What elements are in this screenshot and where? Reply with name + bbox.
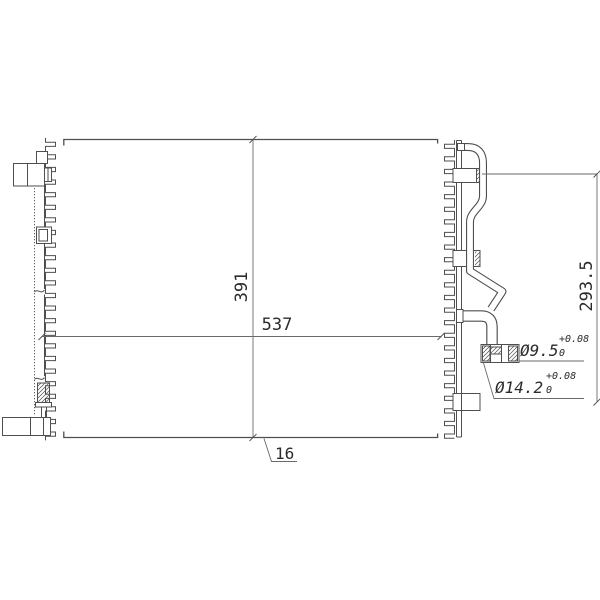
core-top-edge <box>64 140 438 146</box>
dim-port-inner-tol-lower: 0 <box>559 348 565 359</box>
receiver-drier-break-line-lower <box>35 378 45 380</box>
dimension-texts: 391 537 293.5 16 Ø9.5 +0.08 0 Ø14.2 +0.0… <box>232 260 597 463</box>
dimensions <box>39 136 600 462</box>
dim-width-text: 537 <box>262 315 293 335</box>
dim-port-outer-tol-lower: 0 <box>546 385 552 396</box>
right-header-tank <box>457 141 462 438</box>
lower-port-stub <box>453 394 480 411</box>
dim-port-inner-text: Ø9.5 <box>520 341 559 360</box>
dim-height-text: 391 <box>232 272 252 303</box>
mid-pipe-bracket-hatch <box>475 252 480 266</box>
core-bottom-edge <box>64 432 438 438</box>
elbow-core <box>462 316 492 345</box>
fitting-hatch-left <box>483 346 491 361</box>
dim-port-outer-tol-upper: +0.08 <box>546 371 576 382</box>
pipe-top-stub <box>458 144 465 151</box>
drawing-canvas: 391 537 293.5 16 Ø9.5 +0.08 0 Ø14.2 +0.0… <box>0 0 600 600</box>
dim-thickness-text: 16 <box>275 444 294 463</box>
condenser-drawing: 391 537 293.5 16 Ø9.5 +0.08 0 Ø14.2 +0.0… <box>0 0 600 600</box>
dim-port-outer-text: Ø14.2 <box>495 378 543 397</box>
side-view <box>3 138 56 440</box>
dim-port-inner-tol-upper: +0.08 <box>559 334 589 345</box>
drier-cap-top <box>37 152 48 164</box>
fitting-hatch-right <box>509 346 518 361</box>
elbow-tank-stub <box>457 310 464 323</box>
drier-filter-base <box>36 403 52 408</box>
right-tank-assembly <box>445 140 483 438</box>
receiver-drier-break-line-upper <box>35 290 45 292</box>
dim-pipe-span-text: 293.5 <box>577 260 597 311</box>
drier-filter-hatched <box>38 383 50 405</box>
drier-cap-body <box>14 164 45 187</box>
bottom-fitting-block <box>481 345 519 363</box>
fitting-hatch-collar <box>491 347 502 354</box>
